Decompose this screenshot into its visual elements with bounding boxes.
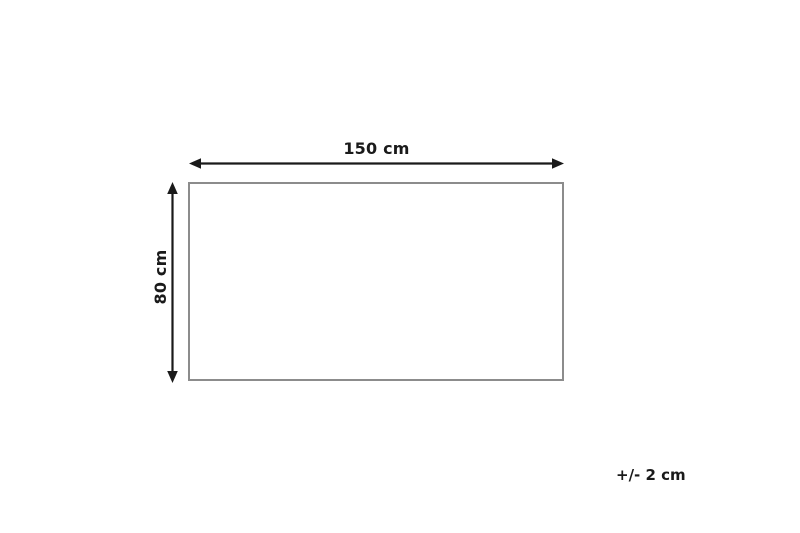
width-dimension-arrow xyxy=(189,157,564,170)
product-outline-rectangle xyxy=(188,182,564,381)
dimension-diagram: 150 cm 80 cm +/- 2 cm xyxy=(0,0,800,533)
arrowhead-up-icon xyxy=(167,182,178,194)
arrowhead-down-icon xyxy=(167,371,178,383)
width-dimension-label: 150 cm xyxy=(189,139,564,158)
height-dimension-label: 80 cm xyxy=(151,237,171,317)
arrowhead-left-icon xyxy=(189,158,201,169)
tolerance-label: +/- 2 cm xyxy=(616,466,686,484)
arrowhead-right-icon xyxy=(552,158,564,169)
